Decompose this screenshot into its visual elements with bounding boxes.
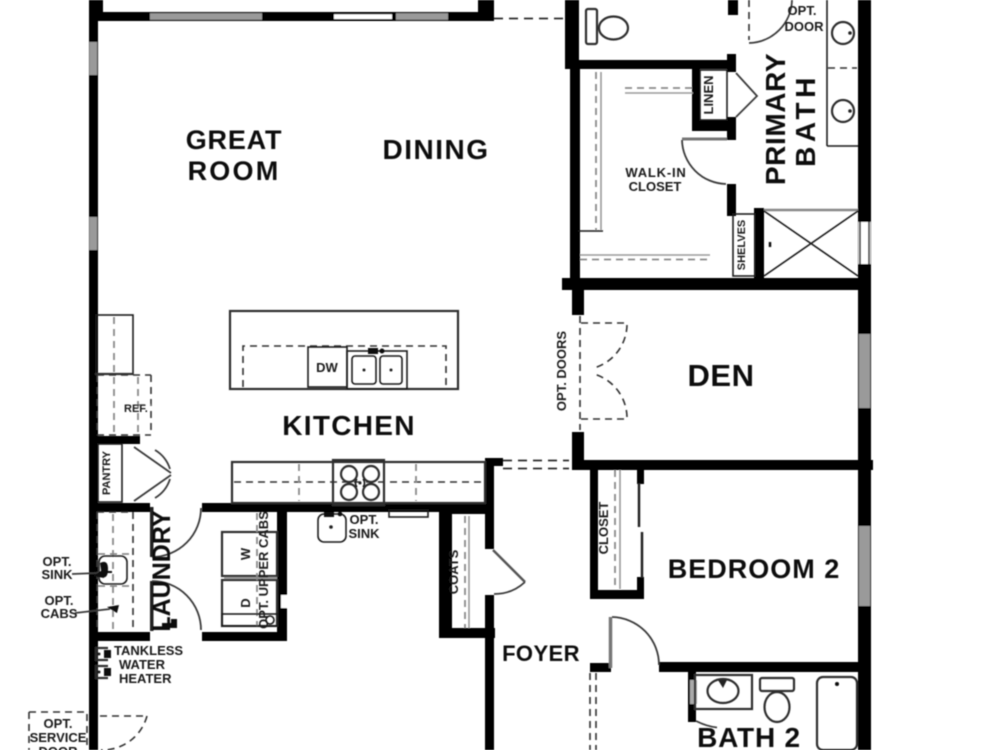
svg-text:CABS: CABS — [41, 606, 78, 621]
svg-text:DOOR: DOOR — [39, 744, 79, 750]
svg-text:SERVICE: SERVICE — [30, 730, 87, 745]
svg-text:CLOSET: CLOSET — [596, 502, 611, 555]
svg-text:OPT. DOORS: OPT. DOORS — [554, 331, 569, 412]
svg-text:PRIMARY: PRIMARY — [760, 53, 791, 185]
svg-text:DEN: DEN — [688, 358, 755, 393]
svg-text:OPT.: OPT. — [788, 3, 817, 18]
svg-text:SINK: SINK — [348, 526, 380, 541]
svg-text:PANTRY: PANTRY — [101, 450, 113, 495]
svg-text:COATS: COATS — [446, 549, 461, 594]
svg-text:BATH 2: BATH 2 — [697, 722, 801, 750]
svg-text:SINK: SINK — [41, 567, 73, 582]
svg-text:REF.: REF. — [124, 403, 148, 415]
svg-text:CLOSET: CLOSET — [629, 179, 682, 194]
svg-text:WATER: WATER — [119, 657, 166, 672]
svg-text:OPT.: OPT. — [44, 716, 73, 731]
svg-text:LAUNDRY: LAUNDRY — [148, 510, 176, 632]
svg-text:LINEN: LINEN — [701, 76, 716, 115]
svg-text:BEDROOM 2: BEDROOM 2 — [668, 554, 841, 584]
svg-text:WALK-IN: WALK-IN — [625, 165, 686, 180]
svg-text:W: W — [238, 547, 253, 560]
svg-text:OPT. UPPER CABS: OPT. UPPER CABS — [256, 511, 271, 629]
svg-text:KITCHEN: KITCHEN — [282, 410, 416, 441]
svg-text:DW: DW — [316, 360, 338, 375]
svg-text:ROOM: ROOM — [188, 156, 281, 186]
svg-text:HEATER: HEATER — [119, 671, 172, 686]
svg-text:DOOR: DOOR — [785, 19, 825, 34]
svg-text:GREAT: GREAT — [186, 125, 283, 155]
svg-text:SHELVES: SHELVES — [736, 220, 748, 271]
svg-text:D: D — [238, 598, 253, 607]
svg-text:TANKLESS: TANKLESS — [114, 643, 183, 658]
svg-text:OPT.: OPT. — [350, 512, 379, 527]
svg-text:FOYER: FOYER — [502, 641, 580, 666]
svg-text:DINING: DINING — [383, 134, 490, 165]
svg-text:BATH: BATH — [790, 73, 821, 167]
